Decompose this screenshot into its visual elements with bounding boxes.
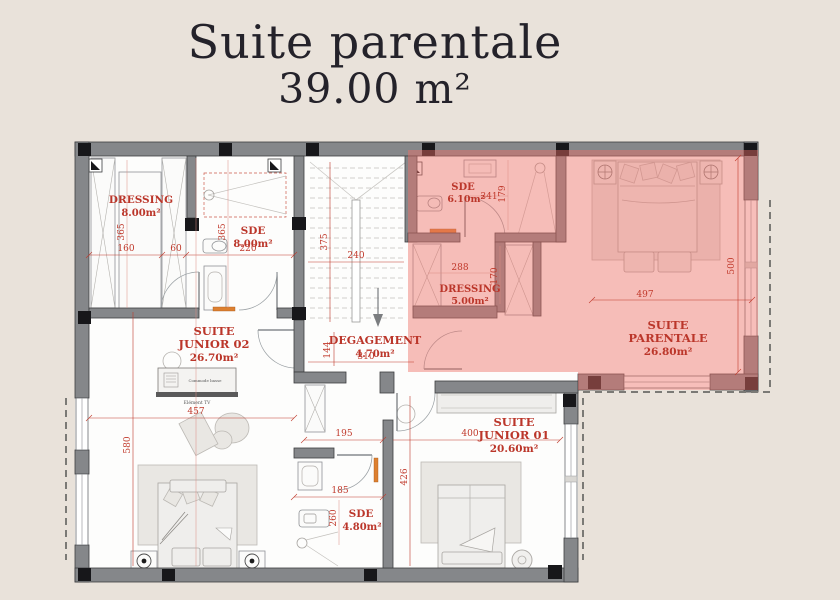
wall-light-icon — [268, 159, 281, 172]
svg-text:SUITE: SUITE — [493, 415, 534, 429]
dim-sde02-gap: 60 — [170, 244, 182, 254]
dim-sde02-height: 365 — [218, 223, 228, 240]
svg-text:5.00m²: 5.00m² — [451, 296, 488, 307]
svg-text:JUNIOR 01: JUNIOR 01 — [478, 428, 550, 442]
pouf — [512, 550, 532, 570]
svg-text:JUNIOR 02: JUNIOR 02 — [178, 337, 250, 351]
dim-stairs-height: 375 — [320, 233, 330, 250]
dresser — [437, 391, 556, 413]
commode-label: Commode basse — [188, 378, 222, 383]
dim-sde01-width: 185 — [331, 486, 348, 496]
wall-light-icon — [89, 159, 102, 172]
svg-text:20.60m²: 20.60m² — [490, 443, 539, 455]
svg-text:6.10m²: 6.10m² — [447, 194, 484, 205]
dim-junior02-width: 457 — [187, 407, 204, 417]
svg-text:26.80m²: 26.80m² — [644, 346, 693, 358]
svg-text:8.00m²: 8.00m² — [121, 208, 160, 219]
svg-text:SDE: SDE — [349, 508, 374, 520]
svg-text:4.80m²: 4.80m² — [342, 522, 381, 533]
svg-text:DRESSING: DRESSING — [439, 284, 500, 295]
svg-text:PARENTALE: PARENTALE — [628, 331, 708, 345]
dim-dressing02-height: 365 — [117, 223, 127, 240]
floor-plan-canvas: Suite parentale 39.00 m² — [0, 0, 840, 600]
towel-bar-icon — [374, 458, 378, 482]
svg-text:SDE: SDE — [451, 182, 475, 193]
window — [565, 424, 577, 538]
stair-stringer — [352, 200, 360, 322]
svg-text:4.70m²: 4.70m² — [355, 349, 394, 360]
corridor-closet — [305, 385, 325, 432]
page-title: Suite parentale — [188, 15, 563, 69]
dim-junior01-width: 400 — [461, 429, 478, 439]
dim-junior01-height: 426 — [400, 468, 410, 485]
svg-text:SUITE: SUITE — [193, 324, 234, 338]
dim-dressing-parentale-height: 170 — [490, 267, 500, 284]
svg-text:26.70m²: 26.70m² — [190, 352, 239, 364]
dressing-02-closets — [91, 158, 186, 310]
svg-text:8.00m²: 8.00m² — [233, 239, 272, 250]
vanity-02 — [204, 266, 226, 310]
svg-text:DRESSING: DRESSING — [109, 194, 173, 206]
page-subtitle: 39.00 m² — [278, 65, 472, 113]
tv-label: Elément TV — [184, 399, 211, 406]
dim-sde01-height: 260 — [329, 509, 339, 526]
towel-bar-icon — [213, 307, 235, 311]
dim-parentale-height: 500 — [727, 257, 737, 274]
svg-text:DEGAGEMENT: DEGAGEMENT — [329, 334, 422, 347]
dim-stairs-width: 240 — [347, 251, 364, 261]
dim-junior02-height: 580 — [123, 436, 133, 453]
toilet-01 — [299, 510, 329, 527]
svg-text:SUITE: SUITE — [647, 318, 688, 332]
dim-parentale-width: 497 — [636, 290, 653, 300]
dim-dressing02-width: 160 — [117, 244, 134, 254]
dim-corridor-width: 195 — [335, 429, 352, 439]
svg-text:SDE: SDE — [241, 225, 266, 237]
dim-dressing-parentale-width: 288 — [451, 263, 468, 273]
dim-sde-parentale-height: 179 — [498, 185, 508, 202]
